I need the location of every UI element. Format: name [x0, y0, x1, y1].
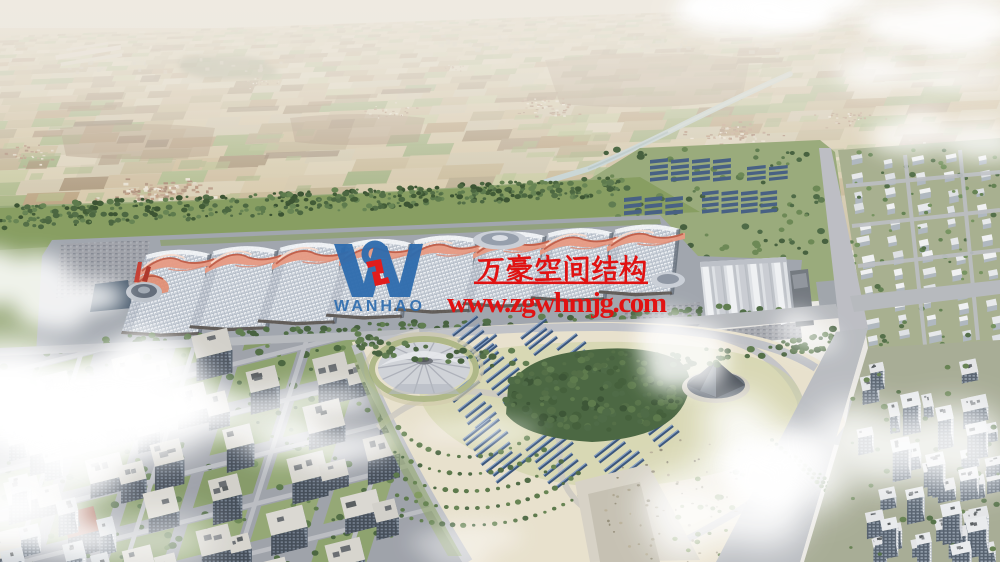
svg-text:www.zgwhmjg.com: www.zgwhmjg.com — [447, 287, 667, 319]
